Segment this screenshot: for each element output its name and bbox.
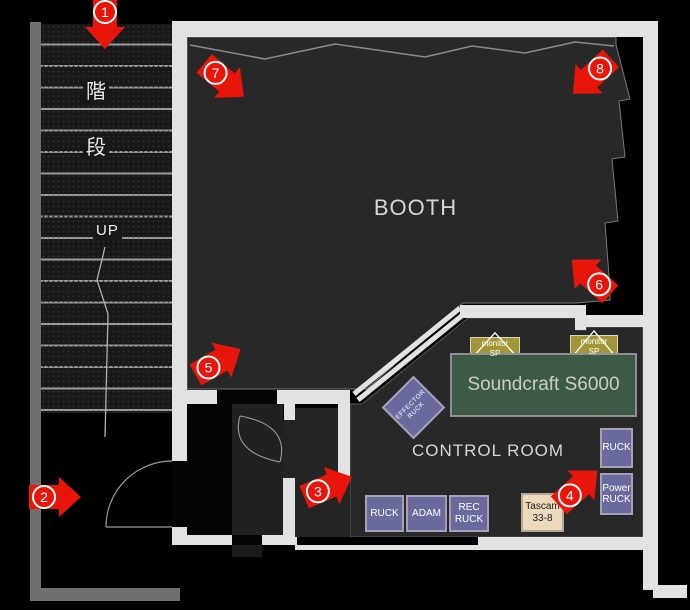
mixing-console: Soundcraft S6000	[450, 353, 637, 417]
vestibule-door-arc-2	[240, 416, 282, 462]
marker-arrow-1: 1	[85, 0, 125, 49]
landing-door-gap	[172, 461, 187, 527]
bottom-wall-accent	[297, 537, 478, 545]
adam-monitor: ADAM	[406, 495, 447, 532]
wall-right	[643, 21, 658, 590]
side-rack: RUCK	[600, 428, 633, 468]
control-room-label: CONTROL ROOM	[398, 441, 578, 461]
doorway-floor	[283, 420, 295, 478]
wall-booth-bottom	[172, 390, 350, 404]
wall-bottom-left	[172, 535, 295, 545]
marker-arrow-2: 2	[29, 477, 81, 517]
outer-wall-bottom	[30, 588, 180, 601]
wall-stair-right	[172, 21, 187, 545]
vestibule-door-arc-1	[238, 416, 280, 462]
vestibule-floor	[232, 404, 283, 535]
recording-rack: REC RUCK	[449, 495, 489, 532]
stairs-kanji-bottom: 段	[83, 137, 109, 159]
marker-arrow-8: 8	[559, 44, 624, 109]
stairs-up-label: UP	[93, 223, 122, 240]
wall-booth-bottom-right	[460, 305, 577, 318]
studio-floor-plan: 階 段 UP BOOTH CONTROL ROOM monitor SP mon…	[0, 0, 690, 610]
marker-arrow-7: 7	[191, 48, 257, 112]
marker-arrow-3: 3	[296, 458, 359, 515]
wall-stub-575	[575, 305, 586, 330]
wall-stub-284	[284, 398, 295, 420]
marker-arrow-6: 6	[558, 245, 623, 310]
wall-control-top	[585, 315, 643, 327]
wall-vestibule	[283, 478, 295, 545]
wall-top	[172, 21, 658, 37]
vestibule-black-area	[187, 404, 232, 535]
booth-door-gap	[217, 390, 277, 404]
wall-corner-br	[653, 585, 687, 598]
booth-room-label: BOOTH	[348, 195, 483, 221]
landing-door-arc	[106, 461, 172, 527]
stairs-kanji-top: 階	[83, 81, 109, 103]
wall-control-bottom	[295, 537, 643, 550]
floor-rack: RUCK	[365, 495, 404, 532]
bottom-door-stub	[232, 545, 262, 557]
bottom-door-gap	[232, 535, 262, 545]
effector-rack: EFFECTOR RUCK	[382, 376, 446, 440]
marker-arrow-5: 5	[185, 332, 250, 393]
booth-zigzag-line	[190, 42, 614, 59]
